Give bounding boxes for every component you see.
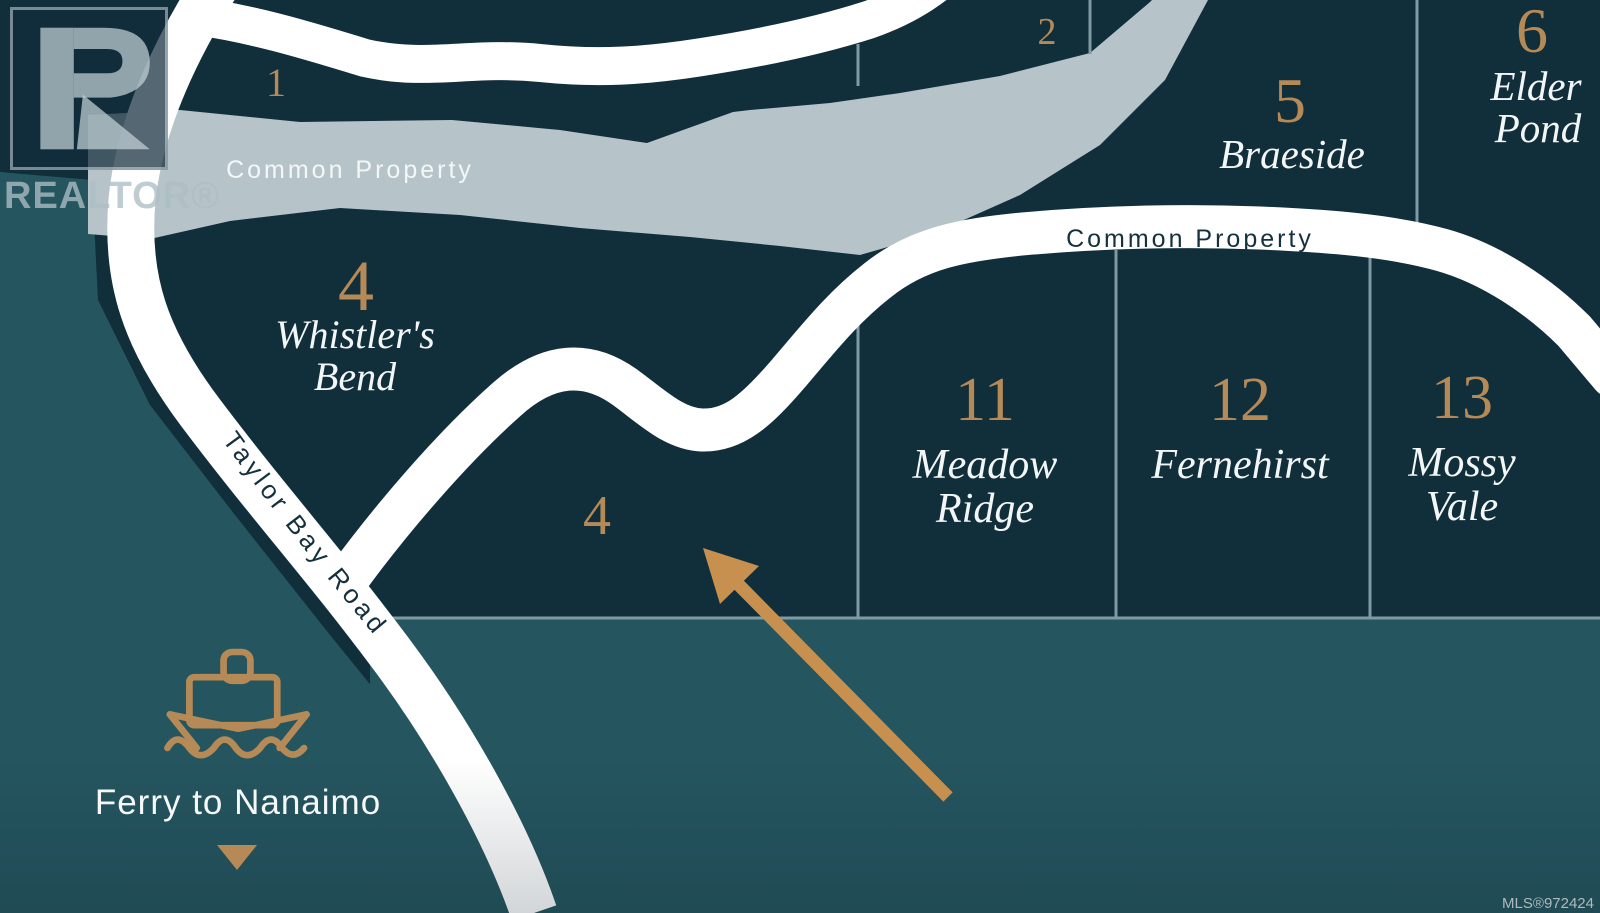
lot4-name-line2: Bend bbox=[314, 354, 397, 399]
lot4-name-line1: Whistler's bbox=[275, 312, 435, 357]
lot6-name-line1: Elder bbox=[1489, 63, 1582, 109]
lot2-number: 2 bbox=[1038, 11, 1057, 53]
lot13-name-line1: Mossy bbox=[1407, 440, 1516, 486]
lot13-number: 13 bbox=[1431, 364, 1493, 432]
lot4-number-south: 4 bbox=[583, 485, 611, 547]
lot6-name-line2: Pond bbox=[1494, 105, 1582, 151]
lot5-name: Braeside bbox=[1219, 131, 1365, 177]
road-common-property-label: Common Property bbox=[1066, 225, 1314, 253]
lot6-number: 6 bbox=[1516, 0, 1548, 66]
lot12-number: 12 bbox=[1209, 366, 1271, 434]
lot5-number: 5 bbox=[1274, 65, 1306, 136]
lot11-name-line1: Meadow bbox=[912, 442, 1058, 488]
lot11-name-line2: Ridge bbox=[935, 486, 1034, 532]
lot12-name: Fernehirst bbox=[1150, 442, 1330, 488]
lot1-number: 1 bbox=[266, 60, 286, 105]
stream-common-property-label: Common Property bbox=[226, 156, 474, 184]
ferry-to-nanaimo-label: Ferry to Nanaimo bbox=[95, 783, 381, 822]
lot13-name-line2: Vale bbox=[1426, 484, 1498, 530]
lot11-number: 11 bbox=[955, 366, 1015, 434]
lot-map: Common Property Common Property Taylor B… bbox=[0, 0, 1600, 913]
map-graphic: Common Property Common Property Taylor B… bbox=[0, 0, 1600, 913]
mls-number: MLS®972424 bbox=[1502, 895, 1594, 912]
